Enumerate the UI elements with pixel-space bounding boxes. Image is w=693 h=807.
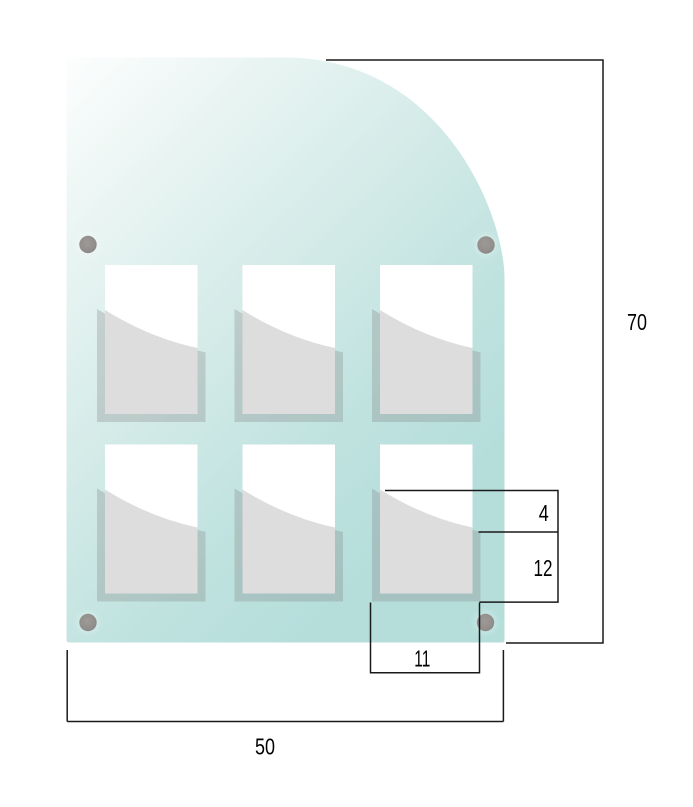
svg-text:12: 12 [534, 555, 553, 581]
svg-text:11: 11 [414, 646, 430, 672]
svg-text:70: 70 [627, 309, 647, 335]
svg-text:50: 50 [255, 734, 275, 760]
svg-text:4: 4 [539, 500, 549, 526]
